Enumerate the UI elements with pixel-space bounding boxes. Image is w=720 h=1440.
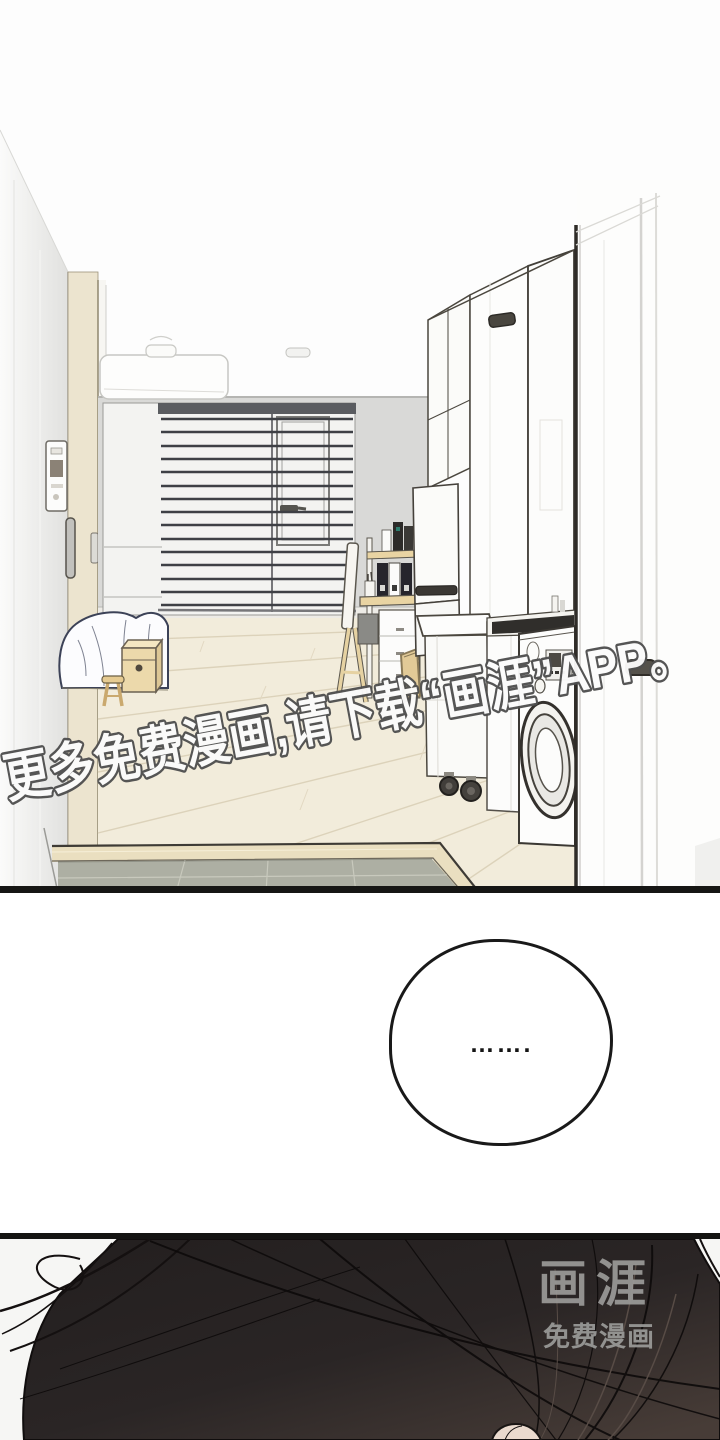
air-conditioner	[100, 355, 228, 399]
file-box	[389, 563, 400, 597]
file-box	[377, 563, 388, 597]
desktop	[360, 595, 422, 606]
speech-bubble-text: …….	[470, 1030, 533, 1059]
pen-cup	[365, 581, 375, 597]
door-handle	[66, 518, 75, 578]
file-box	[401, 563, 412, 597]
door-latch	[91, 533, 98, 563]
panel-border	[0, 886, 720, 893]
foreground-door	[576, 180, 720, 893]
fridge-handle	[416, 586, 457, 596]
panel-gutter	[0, 893, 720, 1233]
cabinet-handle	[488, 312, 515, 328]
room-scene-drawing: 更多免费漫画,请下载“画涯”APP。	[0, 0, 720, 893]
intercom-panel	[46, 441, 67, 511]
window-with-blinds	[103, 403, 356, 615]
wooden-storage-box	[122, 640, 162, 692]
panel-room-scene: 更多免费漫画,请下载“画涯”APP。	[0, 0, 720, 893]
smoke-detector	[286, 348, 310, 357]
ceiling-lamp	[146, 345, 176, 357]
brand-logo-tagline: 免费漫画	[538, 1315, 708, 1354]
comic-page: 更多免费漫画,请下载“画涯”APP。 …….	[0, 0, 720, 1440]
brand-logo-mark: 画涯	[538, 1258, 708, 1311]
speech-bubble: …….	[389, 939, 613, 1146]
brand-logo: 画涯 免费漫画	[538, 1258, 708, 1354]
entry-step	[52, 843, 478, 893]
